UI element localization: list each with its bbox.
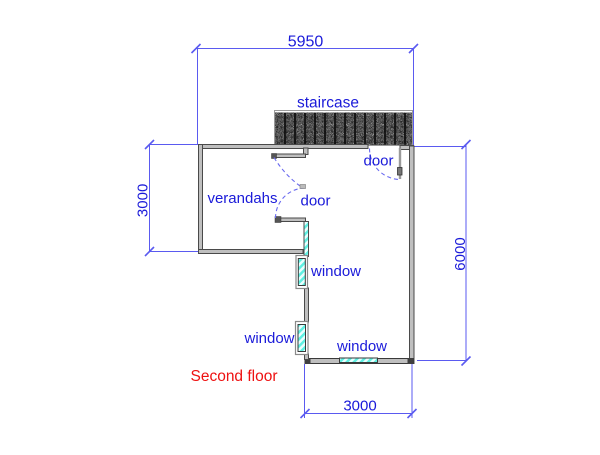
svg-text:verandahs: verandahs <box>207 190 277 207</box>
svg-text:3000: 3000 <box>343 398 376 415</box>
svg-text:door: door <box>363 153 393 170</box>
svg-text:door: door <box>300 193 330 210</box>
svg-text:5950: 5950 <box>288 34 324 51</box>
svg-text:6000: 6000 <box>452 237 469 270</box>
svg-text:3000: 3000 <box>134 184 151 217</box>
svg-text:staircase: staircase <box>297 95 359 112</box>
svg-text:window: window <box>310 263 361 280</box>
svg-text:Second floor: Second floor <box>190 368 277 385</box>
svg-text:window: window <box>243 330 294 347</box>
svg-text:window: window <box>336 338 387 355</box>
